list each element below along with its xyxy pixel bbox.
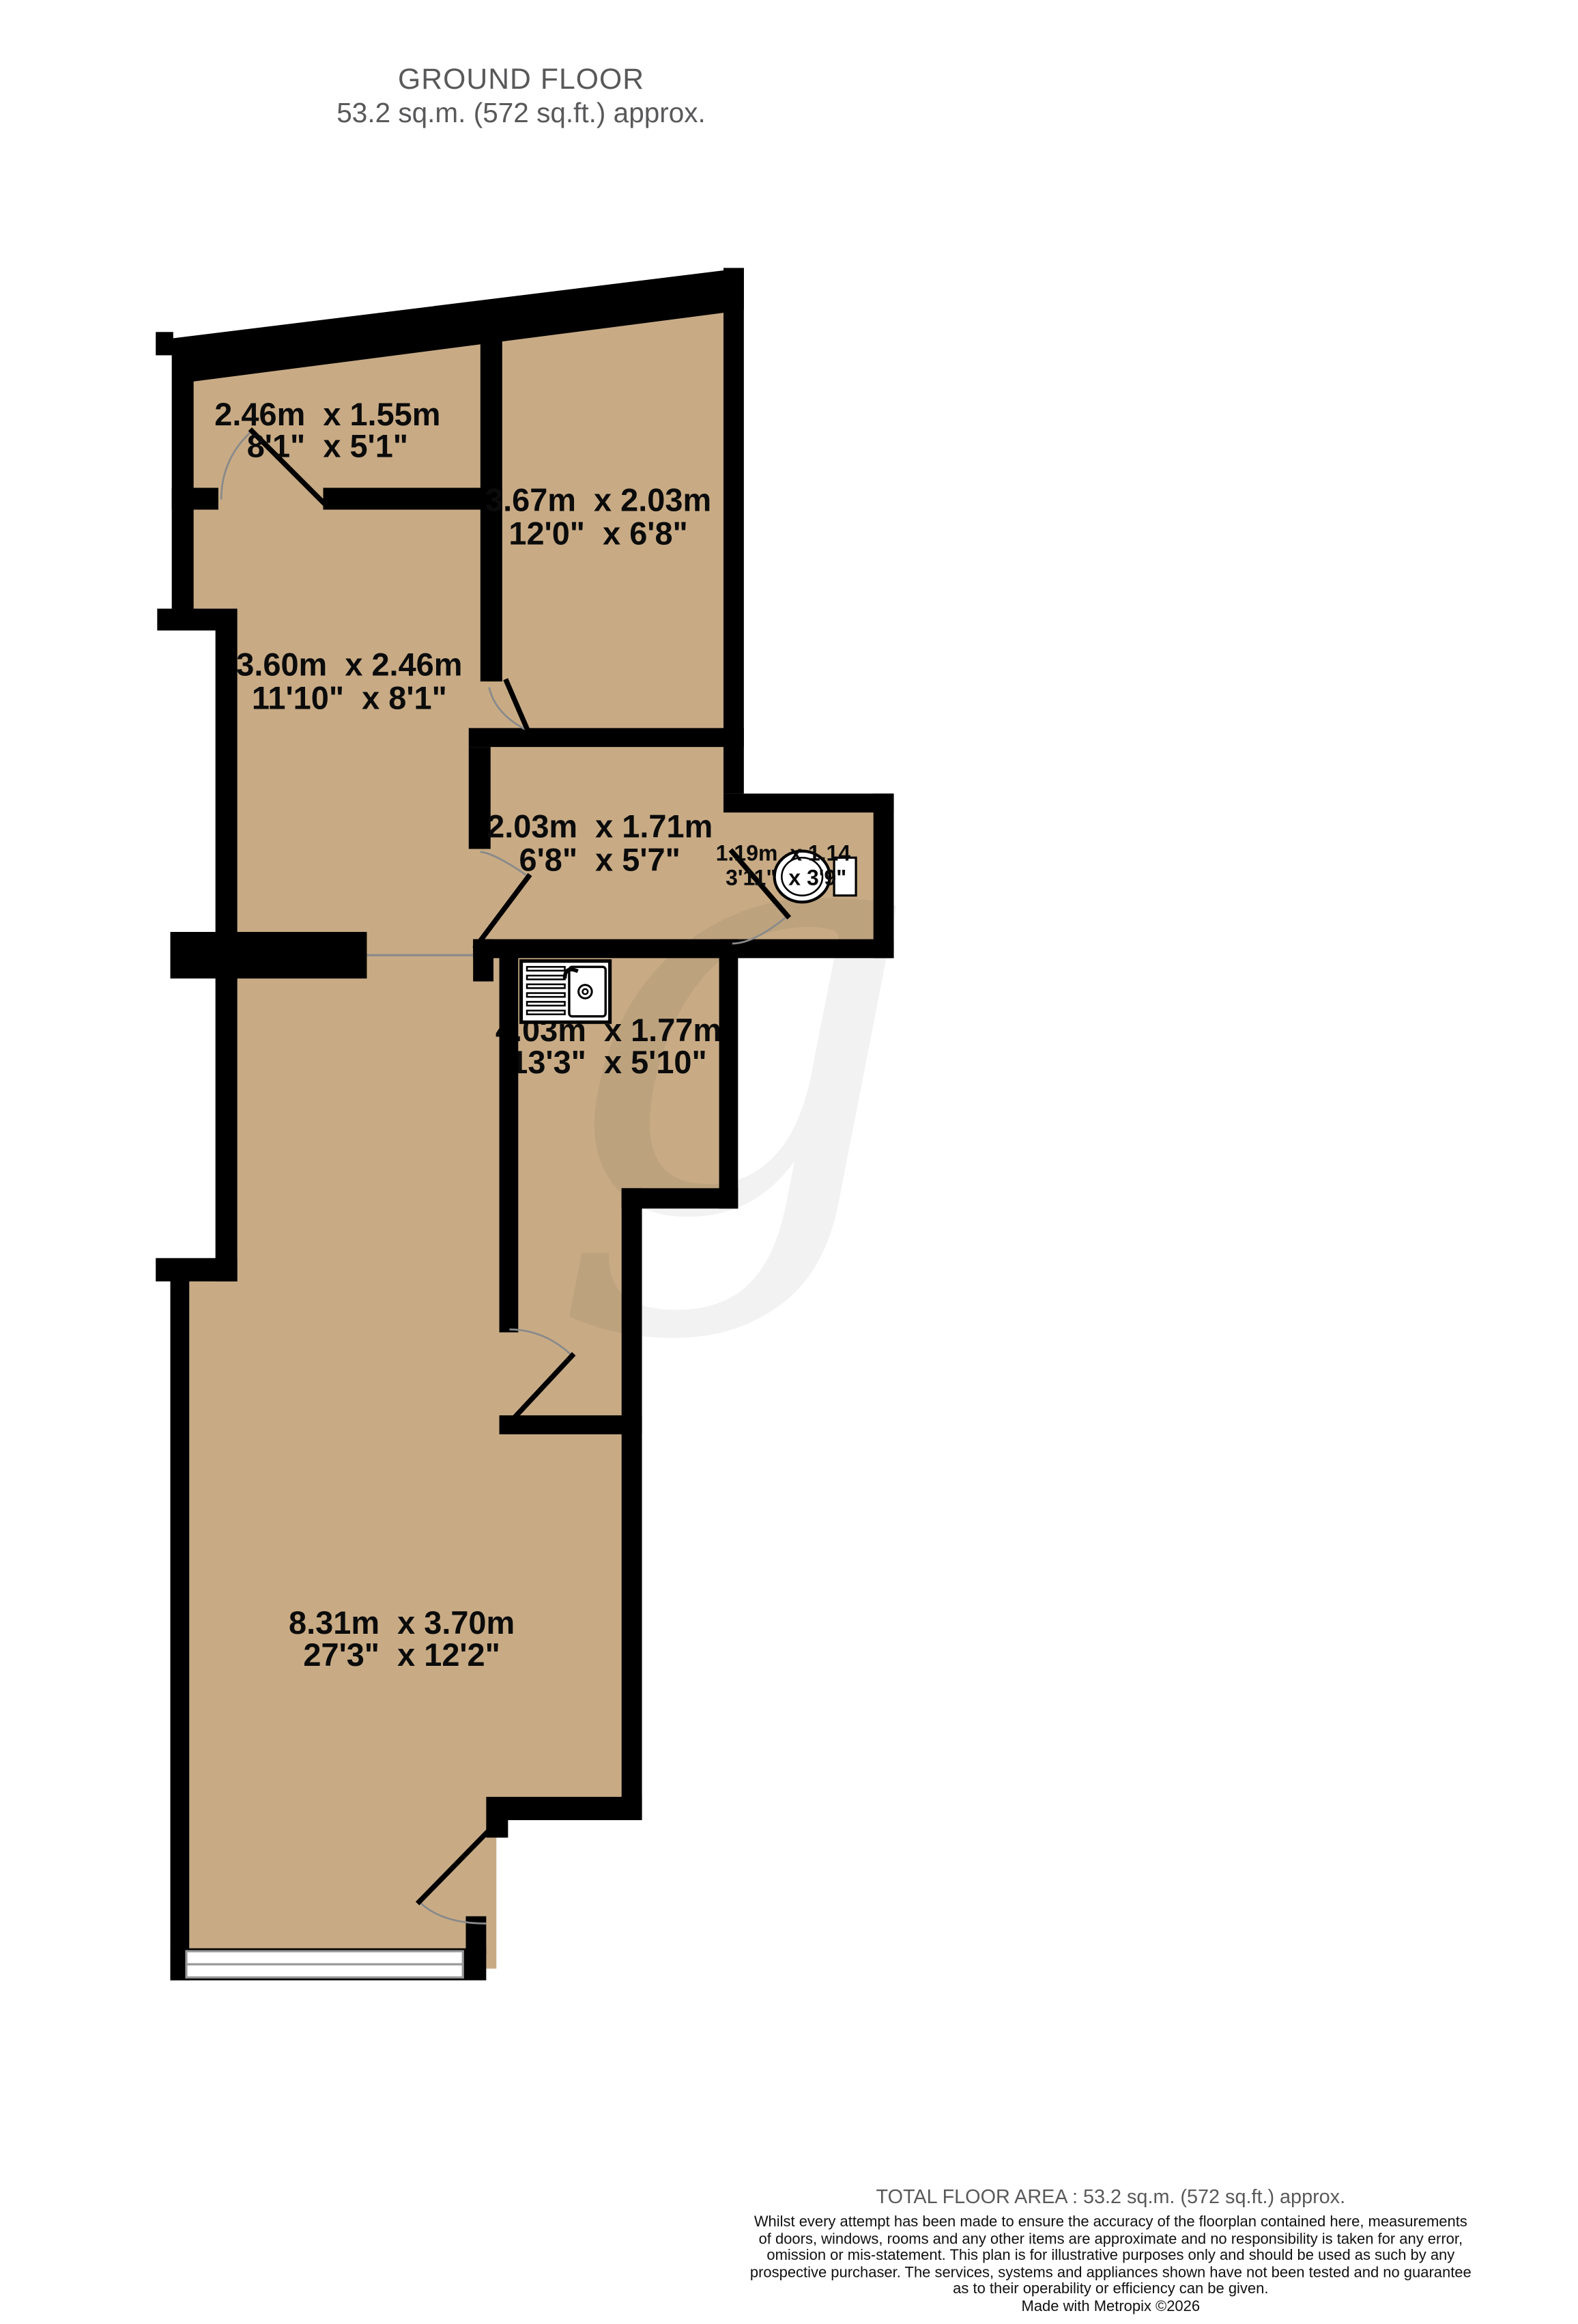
left-step-1: [157, 609, 237, 631]
room1-imperial: 8'1" x 5'1": [247, 429, 408, 464]
metropix-credit: Made with Metropix ©2026: [717, 2299, 1504, 2316]
corridor-bottom-wall: [473, 939, 893, 959]
room2-metric: 3.67m x 2.03m: [485, 483, 711, 518]
left-step-2: [156, 1258, 237, 1281]
hall-thick-stub: [171, 932, 367, 978]
left-nub-top: [156, 332, 173, 355]
kitchen-right-wall: [719, 939, 738, 1209]
disclaimer-line: as to their operability or efficiency ca…: [717, 2282, 1504, 2299]
disclaimer: Whilst every attempt has been made to en…: [717, 2215, 1504, 2316]
hall-metric: 3.60m x 2.46m: [236, 647, 462, 683]
kitchen-left-wall: [500, 950, 519, 1333]
hall-imperial: 11'10" x 8'1": [252, 681, 447, 716]
left-wall-lower: [171, 1261, 190, 1981]
disclaimer-line: of doors, windows, rooms and any other i…: [717, 2232, 1504, 2249]
disclaimer-line: prospective purchaser. The services, sys…: [717, 2265, 1504, 2282]
inner-imperial: 6'8" x 5'7": [519, 842, 680, 877]
kitchen-bottom-wall: [500, 1415, 642, 1434]
disclaimer-line: omission or mis-statement. This plan is …: [717, 2248, 1504, 2265]
living-imperial: 27'3" x 12'2": [303, 1637, 500, 1673]
right-wall-lower: [622, 1188, 642, 1820]
room1-bottom-wall-a: [172, 487, 218, 509]
room2-imperial: 12'0" x 6'8": [508, 516, 687, 552]
disclaimer-line: Whilst every attempt has been made to en…: [717, 2215, 1504, 2232]
living-metric: 8.31m x 3.70m: [289, 1605, 515, 1641]
wc-imperial: 3'11" x 3'9": [726, 866, 846, 890]
room2-bottom-wall: [469, 728, 744, 747]
door-jamb-upper: [486, 1820, 508, 1838]
floorplan-drawing: g 4.03m x 1.77m 13'3" x 5'10": [0, 0, 1578, 2324]
wc-right-wall: [874, 793, 894, 958]
wc-metric: 1.19m x 1.14: [716, 840, 851, 865]
room1-bottom-wall-b: [323, 487, 502, 509]
inner-metric: 2.03m x 1.71m: [487, 808, 713, 844]
window: [186, 1951, 463, 1977]
kitchen-imperial: 13'3" x 5'10": [510, 1045, 707, 1080]
floorplan-page: GROUND FLOOR 53.2 sq.m. (572 sq.ft.) app…: [0, 0, 1578, 2324]
sink-icon: [521, 961, 610, 1023]
wc-top-wall: [723, 793, 894, 812]
room1-metric: 2.46m x 1.55m: [214, 397, 440, 432]
living-step-wall: [486, 1797, 642, 1820]
total-floor-area: TOTAL FLOOR AREA : 53.2 sq.m. (572 sq.ft…: [674, 2185, 1547, 2207]
right-wall-upper: [723, 268, 744, 793]
